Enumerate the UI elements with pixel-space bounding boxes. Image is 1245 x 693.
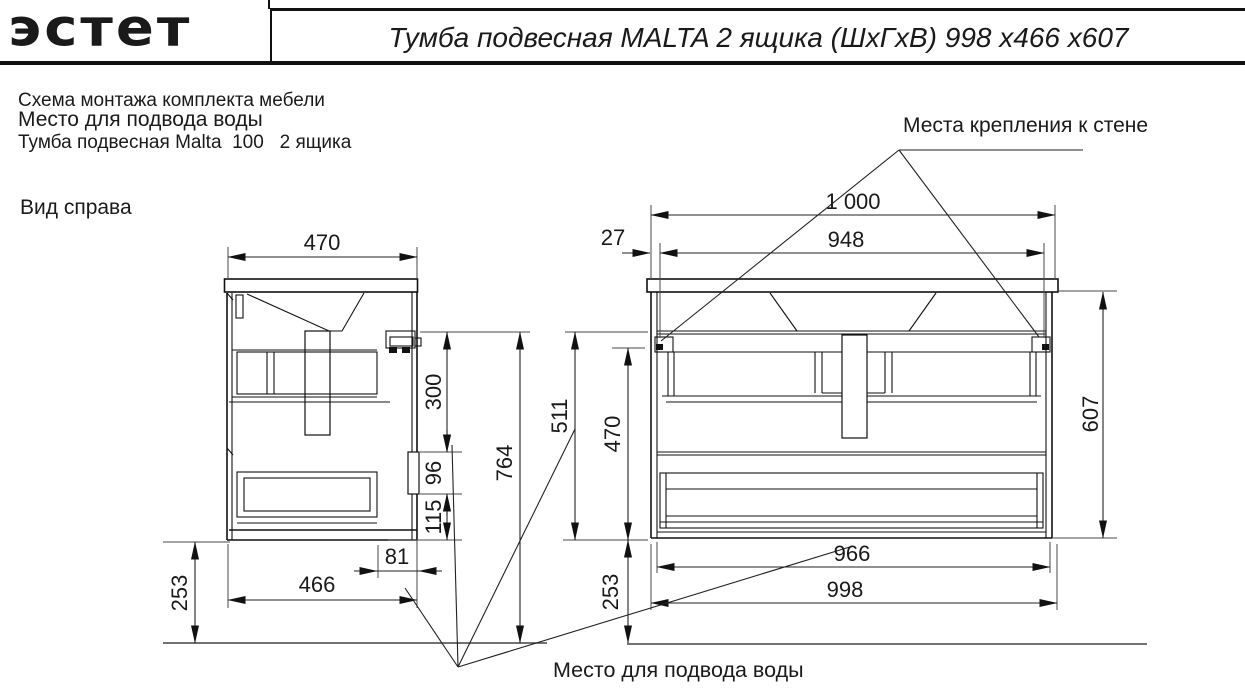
dim-side-top-width: 470 <box>304 230 341 255</box>
dim-side-81: 81 <box>385 544 409 569</box>
dim-side-253: 253 <box>167 575 192 612</box>
dim-front-27: 27 <box>601 225 625 250</box>
dim-front-998: 998 <box>827 577 864 602</box>
dim-side-bottom-width: 466 <box>299 572 336 597</box>
dim-side-115: 115 <box>421 499 446 534</box>
dim-front-1000: 1 000 <box>825 189 880 214</box>
dim-front-470: 470 <box>600 416 625 453</box>
side-view-drawing <box>225 279 422 540</box>
dim-side-96: 96 <box>421 461 446 485</box>
dim-front-511: 511 <box>547 398 572 433</box>
dim-front-948: 948 <box>828 227 865 252</box>
dim-side-300: 300 <box>421 374 446 411</box>
dim-side-764: 764 <box>492 445 517 482</box>
leader-lines <box>405 150 1083 667</box>
dim-front-253: 253 <box>598 574 623 611</box>
technical-drawing: 470 300 96 115 764 253 466 81 1 000 948 … <box>0 0 1245 693</box>
front-view-drawing <box>647 279 1058 538</box>
dim-front-607: 607 <box>1078 396 1103 433</box>
floor-lines <box>163 643 1147 644</box>
drawing-sheet: эстет Тумба подвесная MALTA 2 ящика (ШхГ… <box>0 0 1245 693</box>
dim-front-966: 966 <box>834 541 871 566</box>
